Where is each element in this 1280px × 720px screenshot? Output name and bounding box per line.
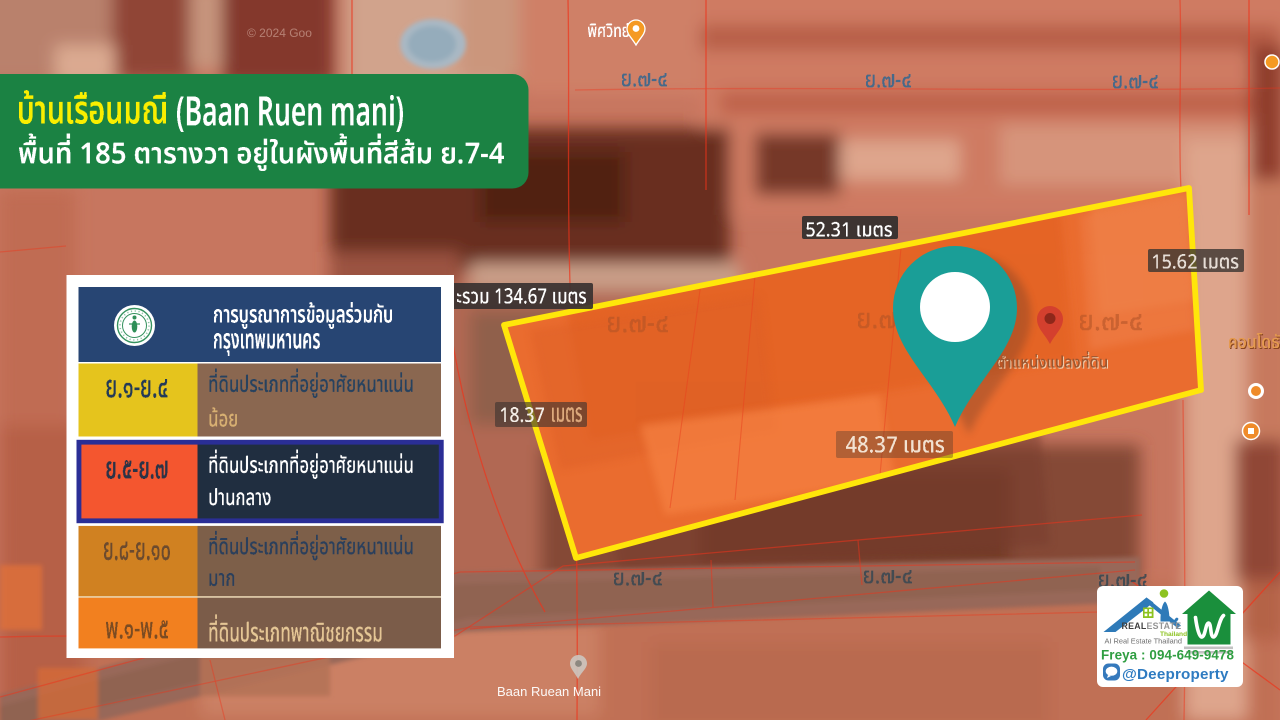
svg-text:AI Real Estate Thailand: AI Real Estate Thailand — [1105, 637, 1183, 646]
svg-text:REALESTATE: REALESTATE — [1122, 621, 1182, 631]
svg-text:© 2024 Goo: © 2024 Goo — [247, 26, 312, 40]
svg-text:@Deeproperty: @Deeproperty — [1122, 666, 1229, 683]
svg-text:Baan Ruean Mani: Baan Ruean Mani — [497, 684, 601, 699]
svg-text:Freya : 094-649-9478: Freya : 094-649-9478 — [1101, 648, 1234, 663]
